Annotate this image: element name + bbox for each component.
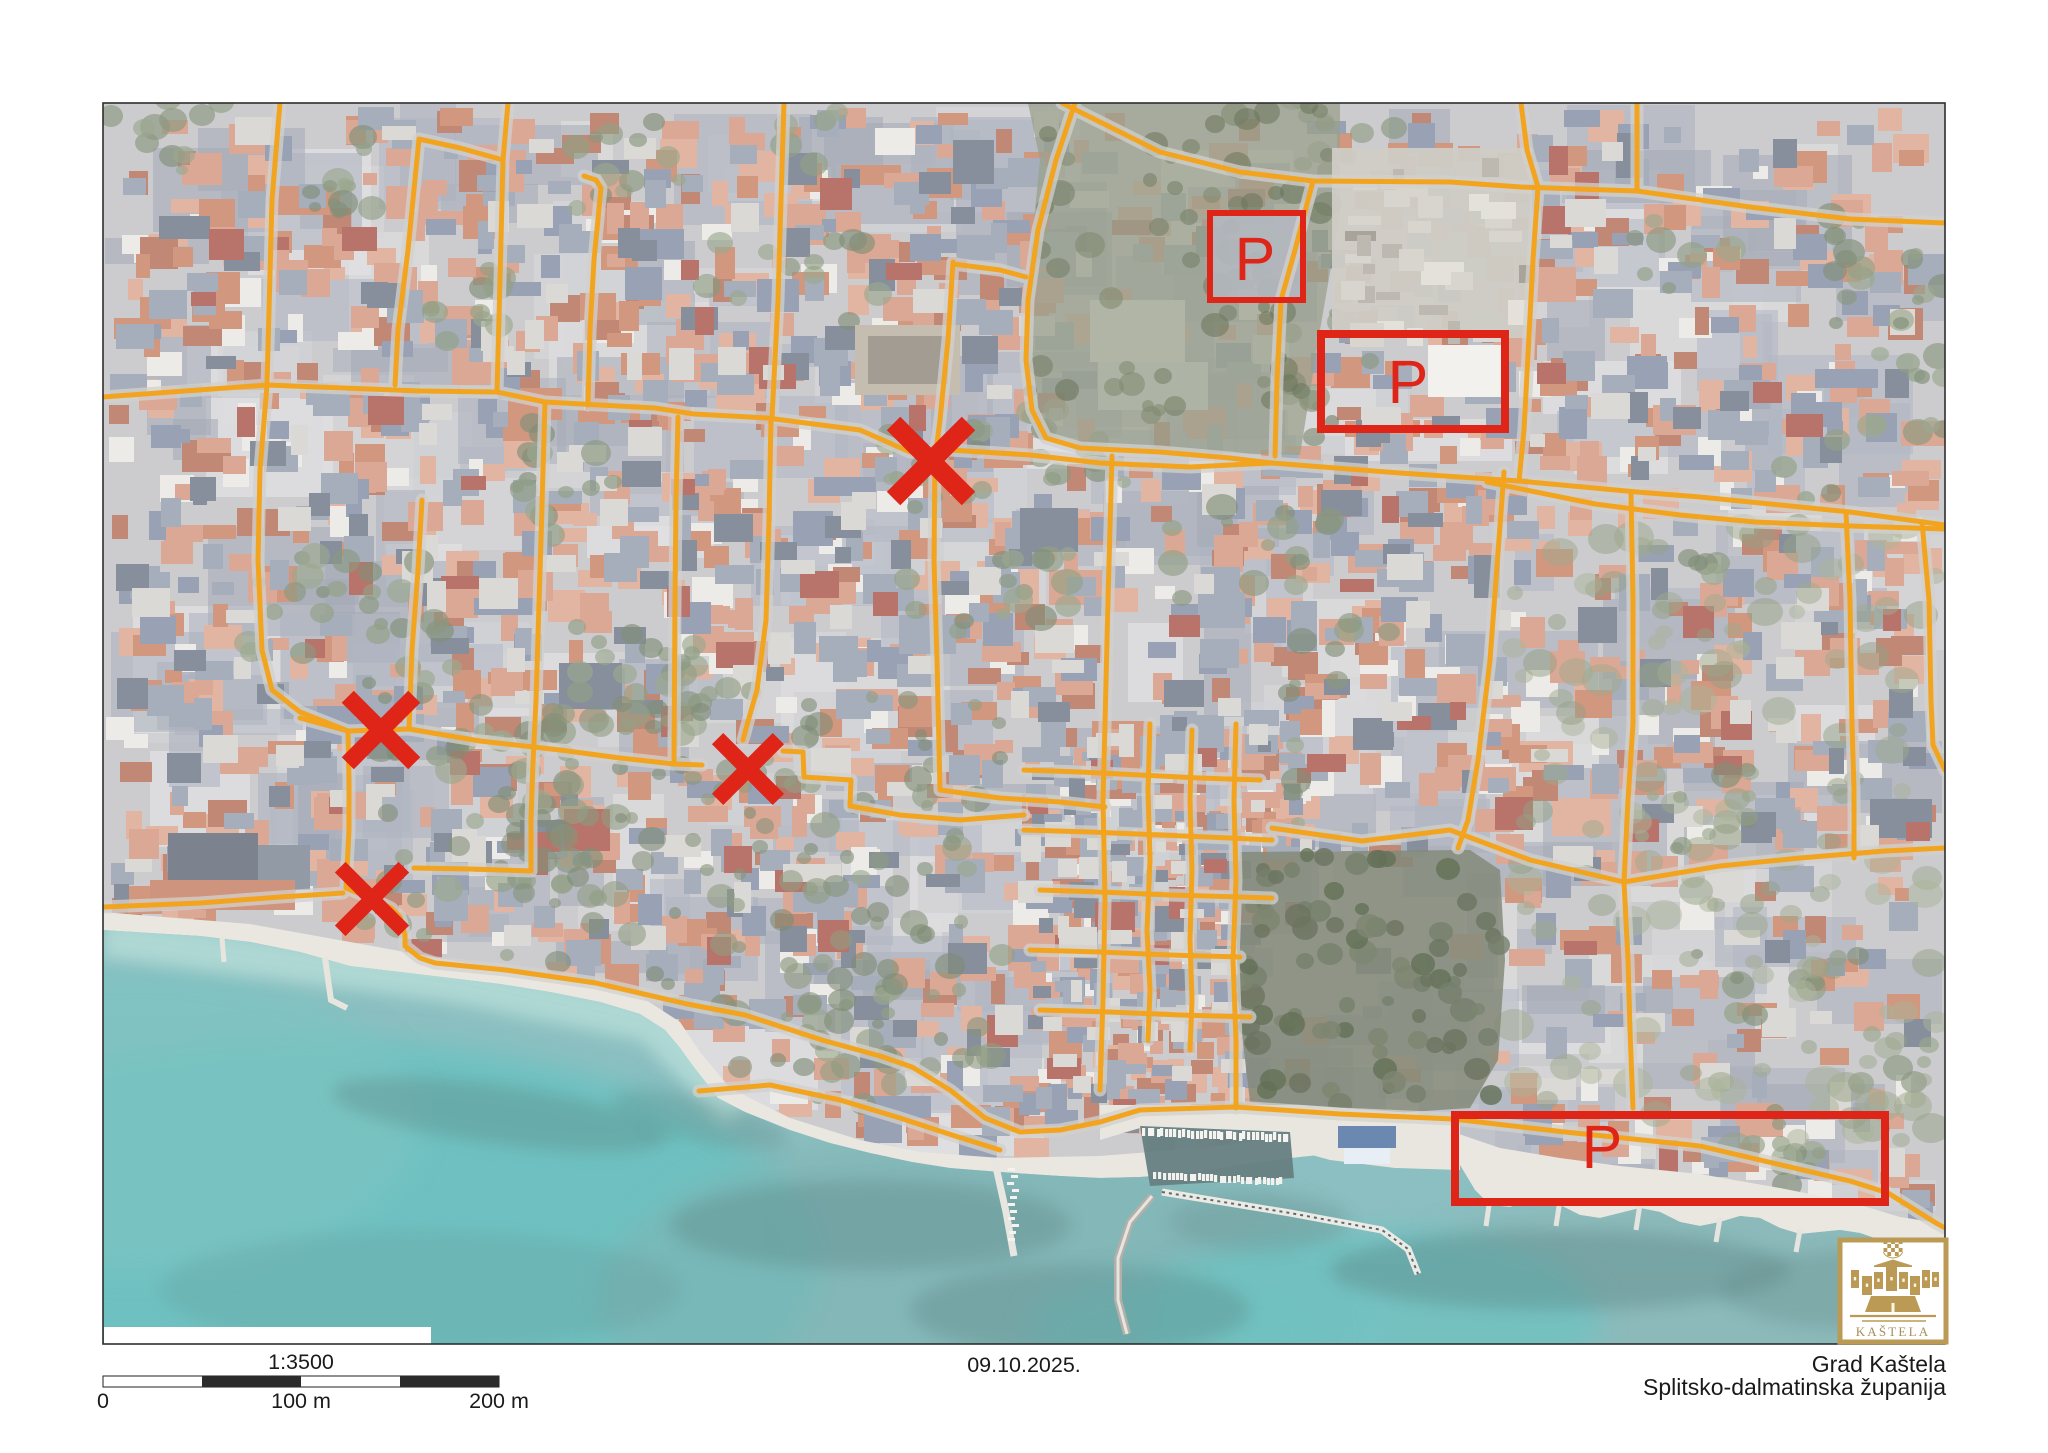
svg-text:KAŠTELA: KAŠTELA	[1856, 1324, 1931, 1339]
svg-text:P: P	[1235, 225, 1276, 293]
svg-text:Splitsko-dalmatinska županija: Splitsko-dalmatinska županija	[1643, 1374, 1946, 1400]
svg-text:1:3500: 1:3500	[268, 1350, 334, 1374]
svg-text:P: P	[1582, 1113, 1623, 1181]
svg-text:100 m: 100 m	[271, 1389, 331, 1413]
svg-text:09.10.2025.: 09.10.2025.	[967, 1353, 1081, 1377]
svg-text:200 m: 200 m	[469, 1389, 529, 1413]
svg-text:0: 0	[97, 1389, 109, 1413]
svg-text:P: P	[1388, 348, 1429, 416]
